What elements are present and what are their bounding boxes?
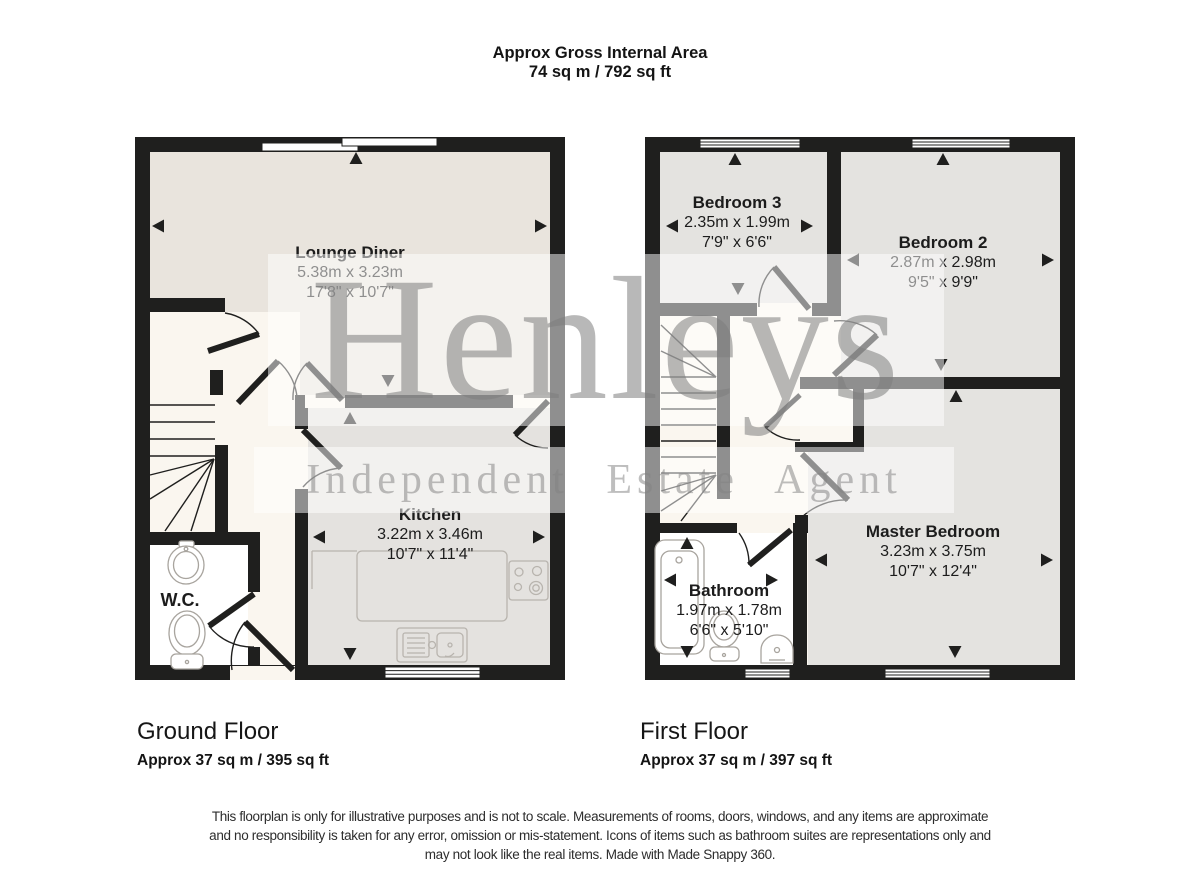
first-floor-plan: Bedroom 3 2.35m x 1.99m 7'9" x 6'6" Bedr… — [645, 137, 1075, 680]
room-label-bedroom-2: Bedroom 2 2.87m x 2.98m 9'5" x 9'9" — [890, 233, 996, 293]
room-size-metric: 3.23m x 3.75m — [866, 542, 1000, 562]
room-label-wc: W.C. — [161, 590, 200, 610]
room-label-kitchen: Kitchen 3.22m x 3.46m 10'7" x 11'4" — [377, 505, 483, 565]
room-name: Lounge Diner — [295, 243, 405, 263]
room-size-metric: 3.22m x 3.46m — [377, 525, 483, 545]
room-size-imperial: 6'6" x 5'10" — [676, 621, 782, 641]
gross-area-title: Approx Gross Internal Area — [0, 44, 1200, 63]
floor-area: Approx 37 sq m / 397 sq ft — [640, 752, 832, 770]
room-size-metric: 2.35m x 1.99m — [684, 213, 790, 233]
ground-floor-caption: Ground Floor Approx 37 sq m / 395 sq ft — [137, 718, 329, 770]
disclaimer-line-1: This floorplan is only for illustrative … — [0, 807, 1200, 826]
room-label-bathroom: Bathroom 1.97m x 1.78m 6'6" x 5'10" — [676, 581, 782, 641]
disclaimer-line-3: may not look like the real items. Made w… — [0, 845, 1200, 864]
room-label-bedroom-3: Bedroom 3 2.35m x 1.99m 7'9" x 6'6" — [684, 193, 790, 253]
room-size-metric: 5.38m x 3.23m — [295, 263, 405, 283]
room-size-metric: 2.87m x 2.98m — [890, 253, 996, 273]
cupboard-floor — [800, 389, 853, 442]
room-name: Bedroom 3 — [684, 193, 790, 213]
front-door-opening — [230, 666, 295, 680]
room-label-master-bedroom: Master Bedroom 3.23m x 3.75m 10'7" x 12'… — [866, 522, 1000, 582]
gross-area-value: 74 sq m / 792 sq ft — [0, 63, 1200, 82]
ground-floor-plan: Lounge Diner 5.38m x 3.23m 17'8" x 10'7"… — [135, 137, 565, 680]
room-size-imperial: 9'5" x 9'9" — [890, 273, 996, 293]
room-name: Kitchen — [377, 505, 483, 525]
room-name: Bathroom — [676, 581, 782, 601]
toilet-icon — [169, 611, 205, 669]
floor-title: Ground Floor — [137, 718, 329, 746]
room-size-imperial: 17'8" x 10'7" — [295, 283, 405, 303]
room-size-imperial: 10'7" x 12'4" — [866, 562, 1000, 582]
ground-floor-drawing — [135, 137, 565, 680]
room-size-imperial: 7'9" x 6'6" — [684, 233, 790, 253]
floor-title: First Floor — [640, 718, 832, 746]
room-name: Bedroom 2 — [890, 233, 996, 253]
room-size-metric: 1.97m x 1.78m — [676, 601, 782, 621]
room-size-imperial: 10'7" x 11'4" — [377, 545, 483, 565]
gross-internal-area-header: Approx Gross Internal Area 74 sq m / 792… — [0, 44, 1200, 82]
room-label-lounge-diner: Lounge Diner 5.38m x 3.23m 17'8" x 10'7" — [295, 243, 405, 303]
floor-area: Approx 37 sq m / 395 sq ft — [137, 752, 329, 770]
disclaimer-line-2: and no responsibility is taken for any e… — [0, 826, 1200, 845]
room-name: W.C. — [161, 590, 200, 610]
room-name: Master Bedroom — [866, 522, 1000, 542]
disclaimer-text: This floorplan is only for illustrative … — [0, 807, 1200, 864]
floorplan-page: Approx Gross Internal Area 74 sq m / 792… — [0, 0, 1200, 878]
first-floor-caption: First Floor Approx 37 sq m / 397 sq ft — [640, 718, 832, 770]
